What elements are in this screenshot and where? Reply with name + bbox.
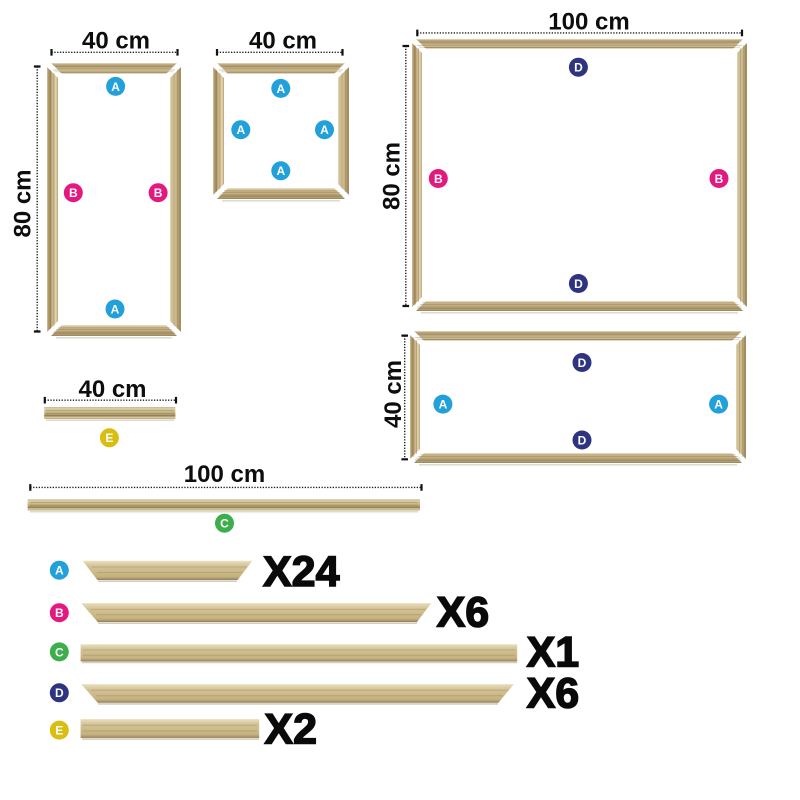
svg-text:A: A — [276, 164, 285, 178]
svg-text:D: D — [55, 686, 64, 700]
svg-text:B: B — [69, 186, 78, 200]
svg-text:B: B — [715, 172, 724, 186]
svg-text:A: A — [320, 123, 329, 137]
svg-text:A: A — [439, 397, 448, 411]
svg-text:B: B — [55, 606, 64, 620]
svg-text:100 cm: 100 cm — [548, 9, 629, 36]
svg-text:A: A — [111, 80, 120, 94]
svg-text:80 cm: 80 cm — [10, 169, 37, 237]
svg-text:X6: X6 — [437, 589, 490, 637]
svg-text:X2: X2 — [264, 706, 317, 754]
svg-text:D: D — [578, 433, 587, 447]
svg-text:80 cm: 80 cm — [379, 142, 406, 210]
svg-text:A: A — [55, 564, 64, 578]
svg-text:A: A — [714, 397, 723, 411]
svg-text:C: C — [55, 645, 64, 659]
svg-text:40 cm: 40 cm — [82, 28, 150, 55]
svg-text:40 cm: 40 cm — [249, 28, 317, 55]
svg-text:D: D — [578, 356, 587, 370]
svg-text:E: E — [55, 723, 63, 737]
svg-text:40 cm: 40 cm — [78, 376, 146, 403]
svg-text:A: A — [276, 82, 285, 96]
svg-text:E: E — [105, 431, 113, 445]
svg-text:D: D — [574, 61, 583, 75]
svg-text:X24: X24 — [263, 548, 340, 596]
svg-text:D: D — [574, 277, 583, 291]
svg-text:A: A — [111, 302, 120, 316]
svg-text:40 cm: 40 cm — [380, 360, 407, 428]
svg-text:B: B — [154, 186, 163, 200]
svg-text:100 cm: 100 cm — [184, 461, 265, 488]
svg-text:A: A — [236, 123, 245, 137]
svg-text:X6: X6 — [527, 670, 580, 718]
svg-text:B: B — [434, 172, 443, 186]
svg-text:C: C — [220, 517, 229, 531]
